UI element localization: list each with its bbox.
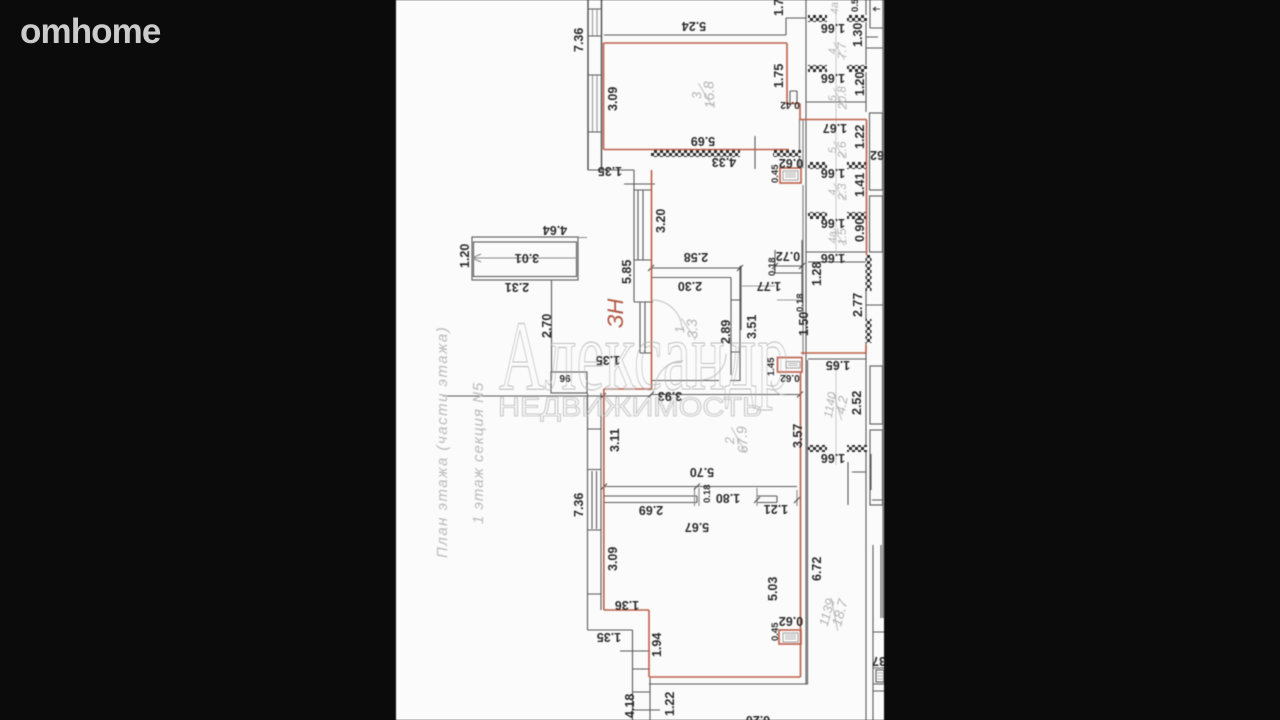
- svg-text:1.66: 1.66: [821, 21, 845, 35]
- svg-text:1 этаж секция N5: 1 этаж секция N5: [470, 382, 487, 524]
- svg-text:67.9: 67.9: [733, 426, 750, 454]
- svg-text:4.18: 4.18: [623, 694, 637, 718]
- svg-text:1.20: 1.20: [853, 72, 867, 96]
- svg-text:62: 62: [870, 148, 884, 162]
- svg-text:0.18: 0.18: [702, 485, 713, 504]
- svg-text:1.50: 1.50: [797, 312, 811, 336]
- svg-text:2.30: 2.30: [678, 279, 702, 293]
- svg-text:0.62: 0.62: [779, 614, 803, 628]
- svg-text:37: 37: [872, 654, 884, 668]
- svg-text:3.20: 3.20: [654, 209, 668, 233]
- svg-text:2.69: 2.69: [639, 503, 663, 517]
- svg-text:1.35: 1.35: [597, 630, 621, 644]
- svg-text:2.6: 2.6: [835, 141, 850, 160]
- svg-text:1.22: 1.22: [853, 125, 867, 149]
- svg-text:4.64: 4.64: [543, 223, 567, 237]
- svg-text:0.18: 0.18: [795, 294, 806, 313]
- svg-text:3.09: 3.09: [606, 547, 620, 571]
- svg-text:6.72: 6.72: [810, 557, 824, 581]
- svg-text:20.8: 20.8: [834, 85, 849, 110]
- svg-text:7.36: 7.36: [572, 28, 586, 52]
- svg-text:0.42: 0.42: [780, 99, 800, 110]
- svg-text:4.33: 4.33: [712, 155, 736, 169]
- svg-text:1.80: 1.80: [716, 491, 740, 505]
- svg-text:1.36: 1.36: [615, 598, 639, 612]
- svg-text:1.66: 1.66: [821, 71, 845, 85]
- svg-text:5.69: 5.69: [691, 134, 715, 148]
- svg-text:3.09: 3.09: [606, 87, 620, 111]
- svg-text:3.57: 3.57: [791, 424, 805, 448]
- svg-text:1.5: 1.5: [835, 228, 850, 246]
- svg-text:1.94: 1.94: [650, 633, 664, 657]
- svg-text:1.7: 1.7: [772, 0, 786, 16]
- svg-text:1.41: 1.41: [853, 173, 867, 197]
- svg-text:План этажа (части этажа): План этажа (части этажа): [434, 326, 451, 558]
- svg-text:7.36: 7.36: [572, 493, 586, 517]
- svg-text:НЕДВИЖИМОСТЬ: НЕДВИЖИМОСТЬ: [498, 392, 762, 422]
- svg-text:1.66: 1.66: [821, 251, 845, 265]
- svg-text:1.35: 1.35: [598, 164, 622, 178]
- svg-text:1.20: 1.20: [458, 244, 472, 268]
- svg-text:1.65: 1.65: [826, 358, 850, 372]
- svg-text:7.7: 7.7: [834, 41, 849, 60]
- svg-text:0.90: 0.90: [853, 218, 867, 242]
- svg-text:3.11: 3.11: [608, 428, 622, 452]
- svg-text:4a: 4a: [829, 2, 842, 15]
- svg-text:1.77: 1.77: [757, 279, 781, 293]
- svg-text:0.62: 0.62: [779, 156, 803, 170]
- svg-text:1.30: 1.30: [851, 23, 865, 47]
- svg-text:1.75: 1.75: [772, 64, 786, 88]
- svg-text:0.5: 0.5: [850, 0, 861, 12]
- svg-text:2.3: 2.3: [835, 183, 850, 202]
- svg-text:2.58: 2.58: [684, 250, 708, 264]
- svg-text:5.03: 5.03: [766, 577, 780, 601]
- svg-text:1.66: 1.66: [821, 216, 845, 230]
- svg-text:0.72: 0.72: [776, 249, 800, 263]
- svg-text:5.67: 5.67: [685, 520, 709, 534]
- svg-text:6.20: 6.20: [746, 713, 770, 720]
- svg-text:1.66: 1.66: [821, 451, 845, 465]
- svg-text:1.66: 1.66: [821, 166, 845, 180]
- svg-text:16.8: 16.8: [700, 81, 717, 109]
- svg-text:1.67: 1.67: [823, 121, 847, 135]
- svg-text:2.31: 2.31: [505, 280, 529, 294]
- svg-text:1.22: 1.22: [663, 692, 677, 716]
- svg-text:3.01: 3.01: [515, 251, 539, 265]
- svg-text:5.24: 5.24: [682, 19, 706, 33]
- svg-text:5.85: 5.85: [620, 260, 634, 284]
- svg-text:5.70: 5.70: [690, 465, 714, 479]
- svg-text:2.52: 2.52: [850, 391, 864, 415]
- svg-text:1.21: 1.21: [764, 502, 788, 516]
- svg-text:2.77: 2.77: [851, 293, 865, 317]
